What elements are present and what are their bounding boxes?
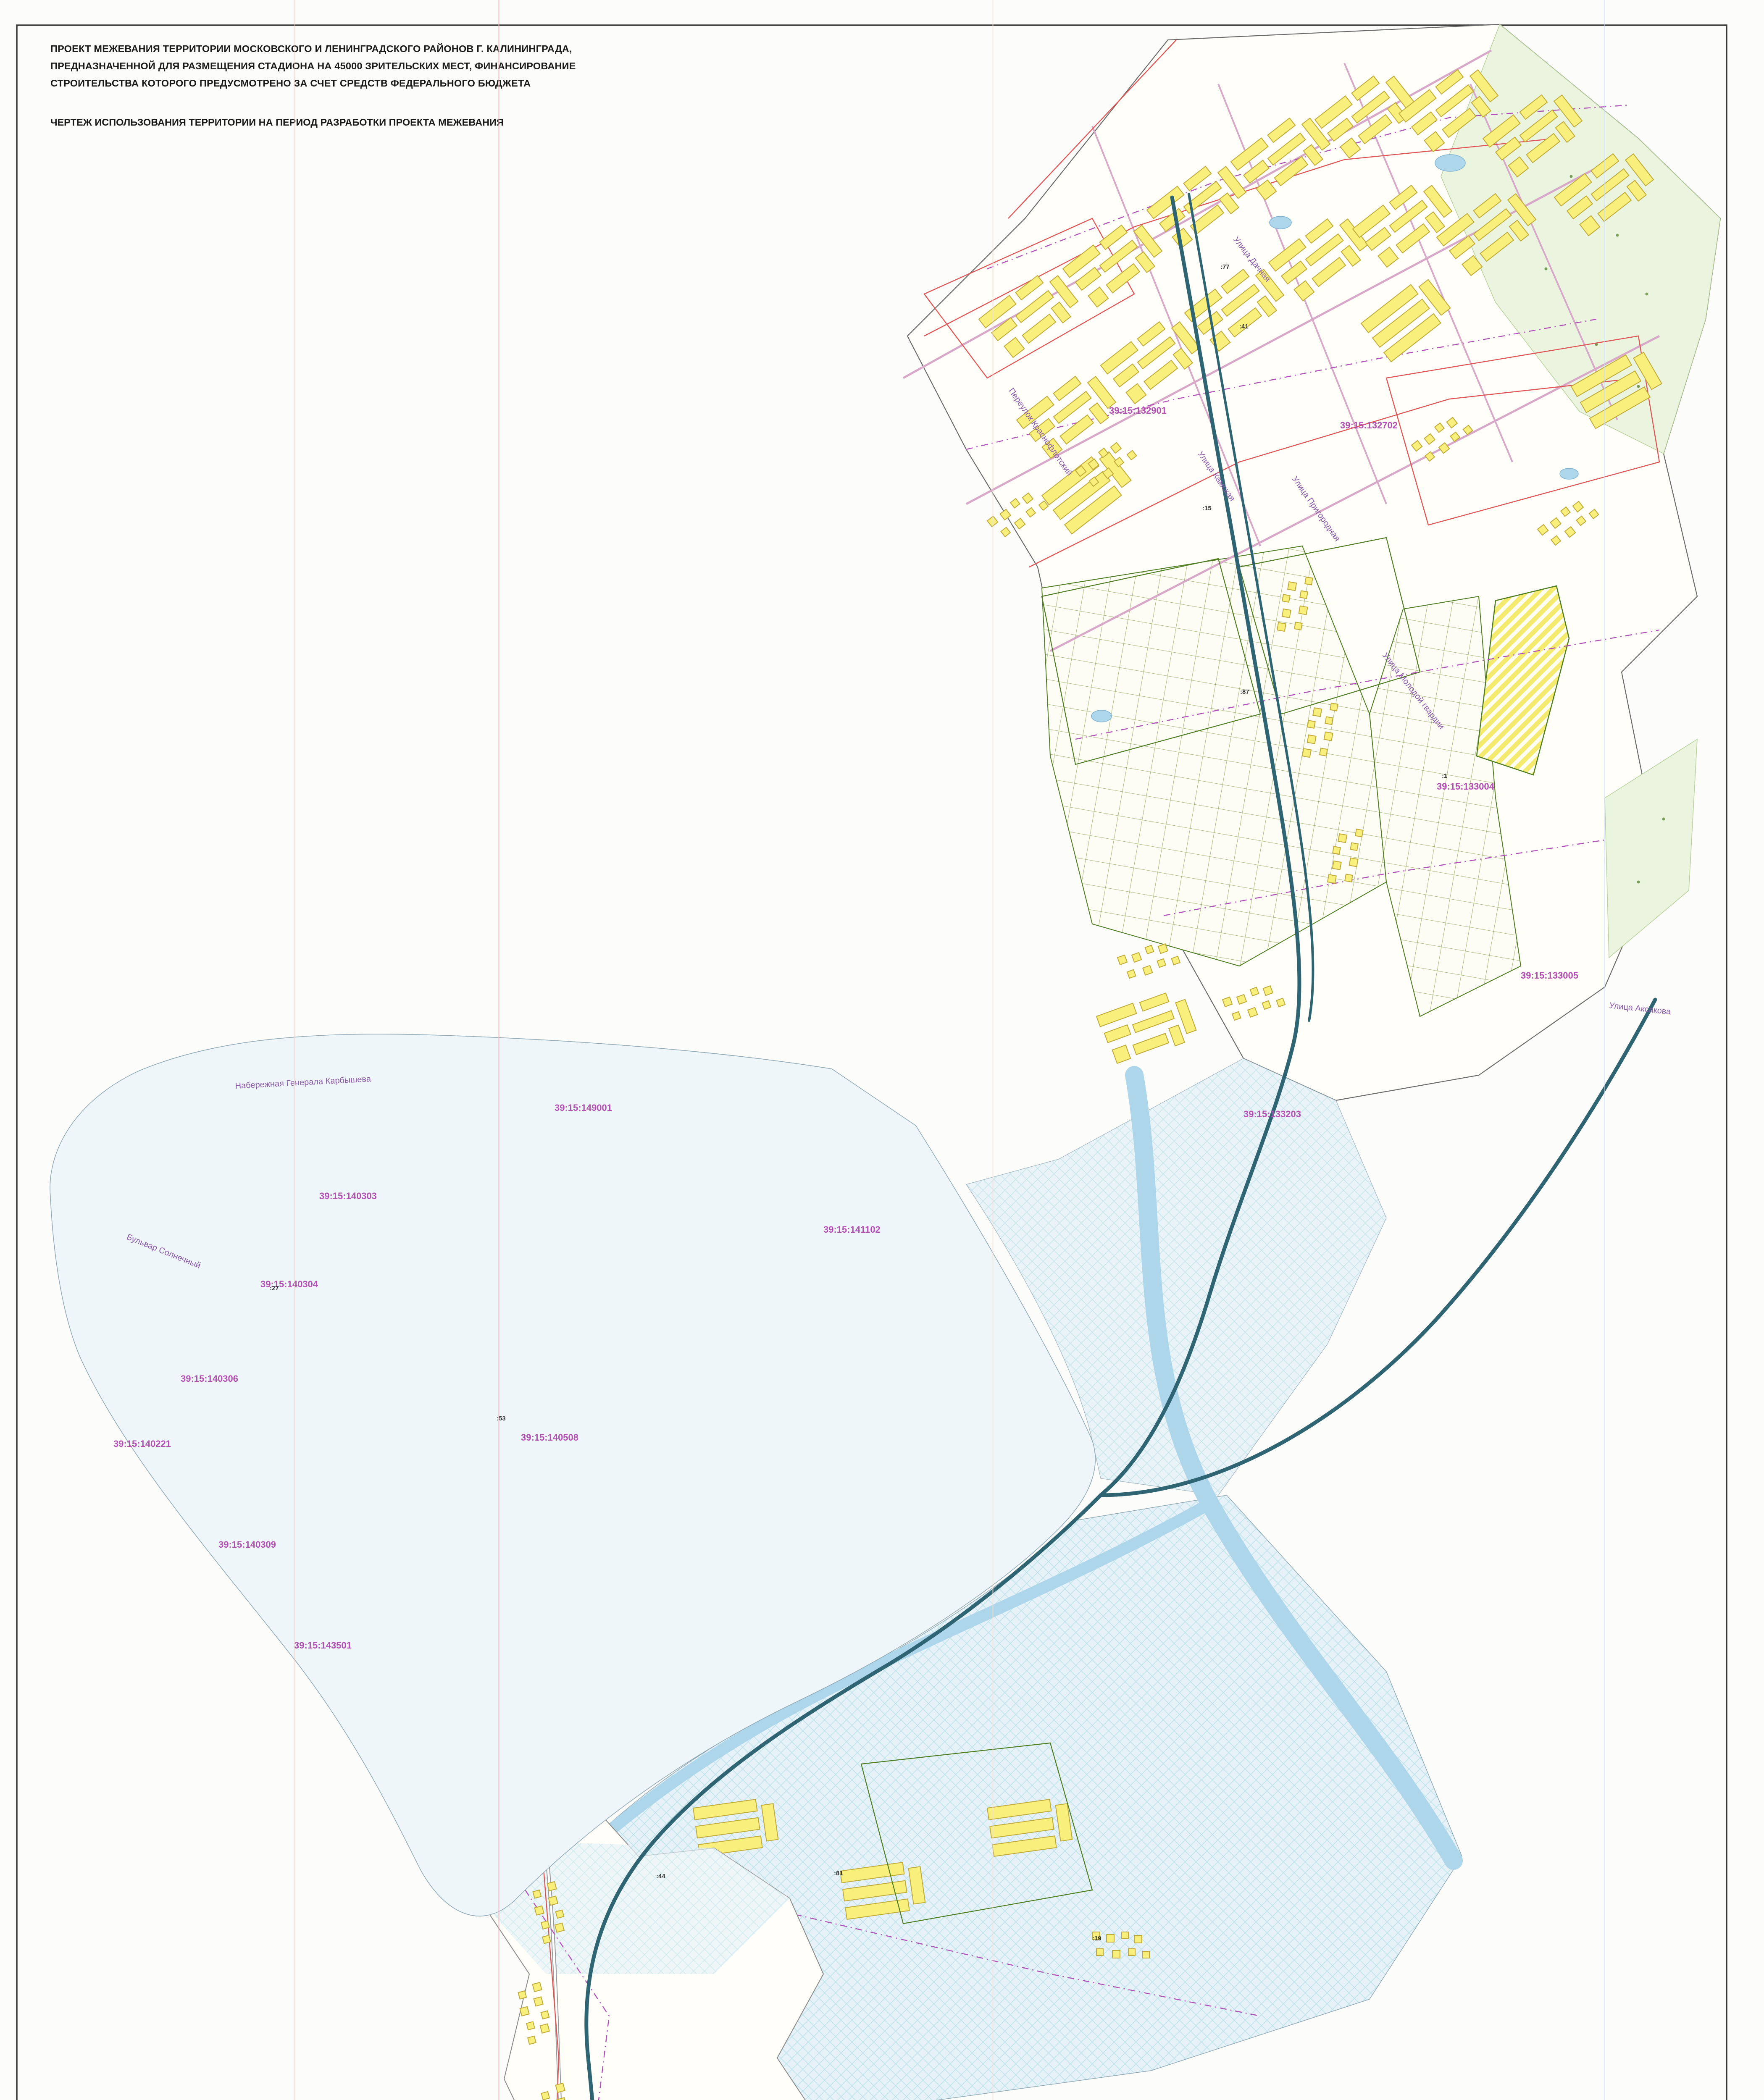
parcel-number-label: :87 [1240, 688, 1249, 696]
cadastral-quarter-label: 39:15:140508 [521, 1432, 578, 1443]
cadastral-quarter-label: 39:15:132901 [1109, 405, 1167, 416]
parcel-number-label: :19 [1092, 1935, 1102, 1942]
title-line-1: ПРОЕКТ МЕЖЕВАНИЯ ТЕРРИТОРИИ МОСКОВСКОГО … [50, 40, 576, 58]
street-name-label: Улица Аксакова [1609, 1001, 1672, 1016]
cadastral-quarter-label: 39:15:133203 [1243, 1109, 1301, 1119]
parcel-number-label: :1 [1442, 772, 1447, 780]
map-canvas: .bld rect{fill:#f8ef7d;stroke:#c0ab3a;st… [0, 0, 1764, 2100]
cadastral-quarter-label: 39:15:133005 [1521, 970, 1578, 981]
drawing-sheet: .bld rect{fill:#f8ef7d;stroke:#c0ab3a;st… [0, 0, 1764, 2100]
parcel-number-label: :53 [497, 1415, 506, 1422]
title-line-2: ПРЕДНАЗНАЧЕННОЙ ДЛЯ РАЗМЕЩЕНИЯ СТАДИОНА … [50, 58, 576, 75]
cadastral-quarter-label: 39:15:140306 [181, 1373, 238, 1384]
title-line-3: СТРОИТЕЛЬСТВА КОТОРОГО ПРЕДУСМОТРЕНО ЗА … [50, 75, 576, 92]
parcel-number-label: :81 [834, 1870, 843, 1877]
parcel-number-label: :15 [1202, 505, 1212, 512]
cadastral-quarter-label: 39:15:133004 [1437, 781, 1495, 792]
parcel-number-label: :27 [270, 1285, 279, 1292]
cadastral-quarter-label: 39:15:140309 [218, 1539, 276, 1550]
cadastral-quarter-label: 39:15:141102 [823, 1224, 881, 1235]
cadastral-quarter-label: 39:15:140221 [113, 1438, 171, 1449]
sheet-title: ПРОЕКТ МЕЖЕВАНИЯ ТЕРРИТОРИИ МОСКОВСКОГО … [50, 40, 576, 92]
parcel-number-label: :41 [1239, 323, 1249, 330]
cadastral-quarter-label: 39:15:132702 [1340, 420, 1398, 430]
drawing-subtitle: ЧЕРТЕЖ ИСПОЛЬЗОВАНИЯ ТЕРРИТОРИИ НА ПЕРИО… [50, 117, 504, 128]
cadastral-quarter-label: 39:15:140303 [319, 1191, 377, 1201]
cadastral-quarter-label: 39:15:149001 [555, 1102, 612, 1113]
parcel-number-label: :77 [1220, 263, 1230, 270]
cadastral-quarter-label: 39:15:140304 [260, 1279, 318, 1289]
cadastral-quarter-label: 39:15:143501 [294, 1640, 352, 1651]
parcel-number-label: :44 [656, 1873, 665, 1880]
